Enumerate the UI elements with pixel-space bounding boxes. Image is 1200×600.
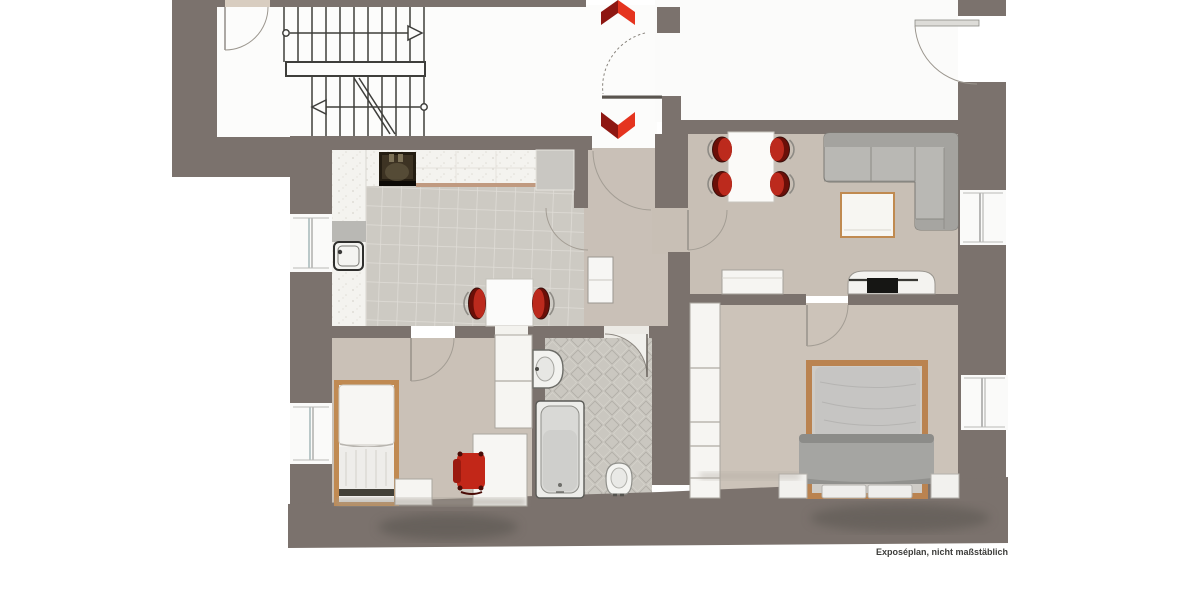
svg-text:Exposéplan, nicht maßstäblich: Exposéplan, nicht maßstäblich xyxy=(876,547,1008,557)
